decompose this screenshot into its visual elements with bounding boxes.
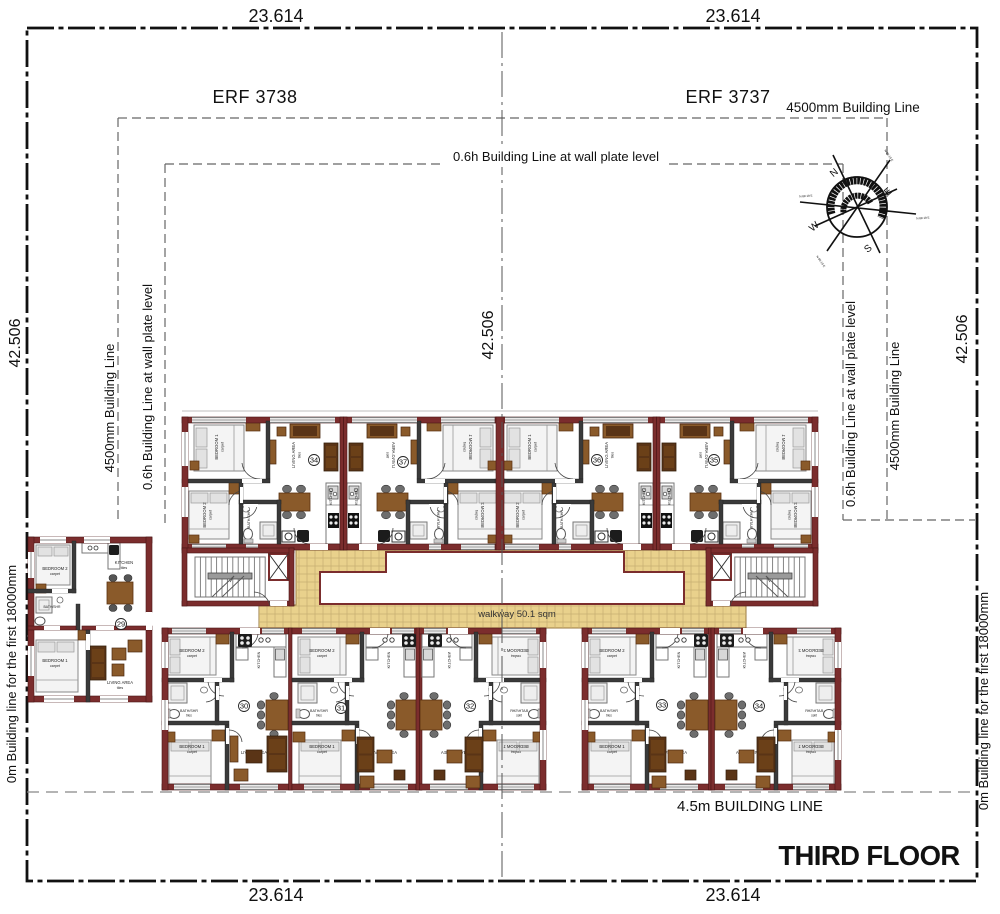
svg-text:4.5m BUILDING LINE: 4.5m BUILDING LINE bbox=[677, 798, 823, 815]
svg-text:THIRD FLOOR: THIRD FLOOR bbox=[778, 840, 960, 871]
svg-text:34: 34 bbox=[755, 702, 763, 711]
svg-text:BEDROOM 1: BEDROOM 1 bbox=[42, 658, 68, 663]
svg-text:23.614: 23.614 bbox=[705, 6, 760, 26]
svg-text:walkway 50.1 sqm: walkway 50.1 sqm bbox=[477, 609, 556, 620]
svg-text:37: 37 bbox=[399, 458, 407, 467]
svg-text:tiles: tiles bbox=[121, 566, 128, 570]
svg-text:4500mm Building Line: 4500mm Building Line bbox=[786, 100, 920, 115]
svg-text:BEDROOM 2: BEDROOM 2 bbox=[42, 566, 68, 571]
svg-text:0.6h Building Line at wall pla: 0.6h Building Line at wall plate level bbox=[140, 284, 155, 490]
svg-text:23.614: 23.614 bbox=[248, 885, 303, 905]
svg-text:LIVING AREA: LIVING AREA bbox=[107, 680, 133, 685]
svg-text:35: 35 bbox=[710, 456, 718, 465]
svg-text:ERF 3738: ERF 3738 bbox=[212, 87, 297, 107]
svg-text:KITCHEN: KITCHEN bbox=[115, 560, 133, 565]
svg-text:32: 32 bbox=[466, 702, 474, 711]
svg-text:42.506: 42.506 bbox=[7, 318, 24, 367]
svg-text:23.614: 23.614 bbox=[705, 885, 760, 905]
svg-text:42.506: 42.506 bbox=[954, 314, 971, 363]
svg-text:tiles: tiles bbox=[117, 686, 124, 690]
svg-text:36: 36 bbox=[593, 456, 601, 465]
svg-text:0m Building line for the first: 0m Building line for the first 18000mm bbox=[976, 592, 991, 810]
svg-text:ERF 3737: ERF 3737 bbox=[685, 87, 770, 107]
svg-text:0.6h Building Line at wall pla: 0.6h Building Line at wall plate level bbox=[843, 301, 858, 507]
svg-text:42.506: 42.506 bbox=[480, 310, 497, 359]
svg-text:34: 34 bbox=[310, 456, 318, 465]
svg-text:carpet: carpet bbox=[50, 572, 60, 576]
svg-text:0m Building line for the first: 0m Building line for the first 18000mm bbox=[4, 565, 19, 783]
svg-text:4500mm Building Line: 4500mm Building Line bbox=[102, 344, 117, 473]
svg-text:23.614: 23.614 bbox=[248, 6, 303, 26]
svg-text:29: 29 bbox=[117, 620, 125, 629]
svg-text:BATH/SHR: BATH/SHR bbox=[44, 605, 61, 609]
svg-text:31: 31 bbox=[337, 704, 345, 713]
svg-text:30: 30 bbox=[240, 702, 248, 711]
svg-text:33: 33 bbox=[658, 701, 666, 710]
svg-text:4500mm Building Line: 4500mm Building Line bbox=[887, 342, 902, 471]
svg-text:0.6h Building Line at wall pla: 0.6h Building Line at wall plate level bbox=[453, 149, 659, 164]
svg-text:carpet: carpet bbox=[50, 664, 60, 668]
